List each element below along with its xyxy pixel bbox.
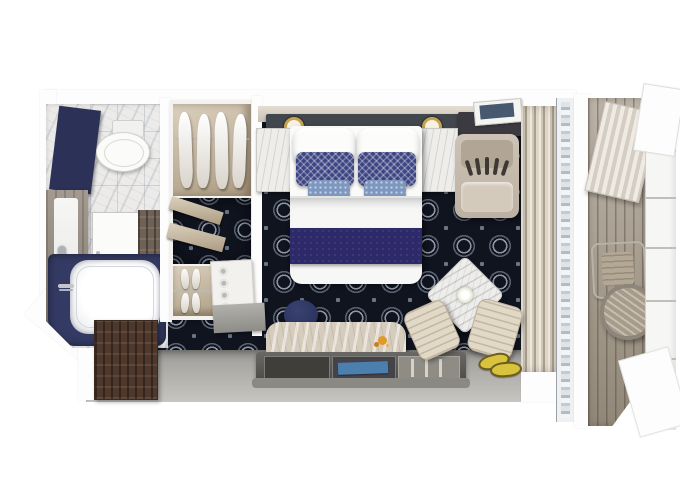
sofa-snack-deco bbox=[378, 336, 387, 345]
partition-door-top bbox=[633, 83, 680, 157]
closet-shelf-wedge bbox=[168, 196, 223, 225]
curtains bbox=[521, 106, 556, 372]
glass-icon bbox=[219, 278, 228, 287]
entry-door bbox=[94, 320, 158, 400]
toilet bbox=[96, 132, 150, 172]
desk-tablet bbox=[473, 98, 523, 126]
bed-runner bbox=[290, 228, 422, 264]
minibar-console bbox=[208, 257, 268, 336]
sliding-glass-door bbox=[556, 98, 576, 422]
bathtub-rim bbox=[76, 266, 154, 328]
partition-seam bbox=[646, 197, 676, 199]
bath-faucet-icon bbox=[58, 284, 74, 288]
partition-seam bbox=[646, 300, 676, 302]
toilet-seat bbox=[104, 139, 144, 167]
hanging-garment bbox=[196, 114, 210, 188]
lounge-chair-seat bbox=[461, 182, 513, 212]
shoe bbox=[191, 293, 200, 313]
tray-divider bbox=[425, 359, 428, 377]
hanging-garment bbox=[178, 112, 194, 188]
balcony-chair-seat bbox=[601, 251, 635, 287]
closet-shelf-wedge bbox=[166, 223, 226, 253]
flower-centerpiece-icon bbox=[454, 284, 477, 307]
partition-panel-angled bbox=[618, 346, 680, 437]
hanging-section bbox=[173, 104, 251, 196]
window-side-wall bbox=[521, 372, 556, 402]
nightstand-right bbox=[418, 128, 458, 192]
console-base bbox=[252, 378, 470, 388]
bathroom bbox=[46, 104, 168, 348]
console-tray bbox=[264, 356, 330, 380]
minibar-body bbox=[212, 303, 265, 334]
tray-divider bbox=[411, 359, 414, 377]
chair-slat-icon bbox=[485, 157, 489, 175]
tablet-screen bbox=[479, 103, 514, 120]
glass-pane bbox=[561, 102, 570, 418]
glass-icon bbox=[220, 290, 229, 299]
glass-icon bbox=[218, 267, 227, 276]
shoe bbox=[180, 269, 189, 290]
lounge-chair bbox=[455, 134, 519, 218]
stateroom-floor-plan bbox=[0, 0, 680, 486]
hanging-garment bbox=[214, 112, 228, 189]
shoe bbox=[180, 293, 189, 314]
closet-open-floor bbox=[173, 198, 251, 264]
partition-seam bbox=[646, 247, 676, 249]
tray-divider bbox=[439, 359, 442, 377]
hull-wall bbox=[574, 94, 590, 428]
console-tray bbox=[332, 356, 396, 380]
hanging-garment bbox=[232, 114, 248, 188]
shoe bbox=[191, 269, 200, 289]
magazine bbox=[338, 361, 388, 375]
